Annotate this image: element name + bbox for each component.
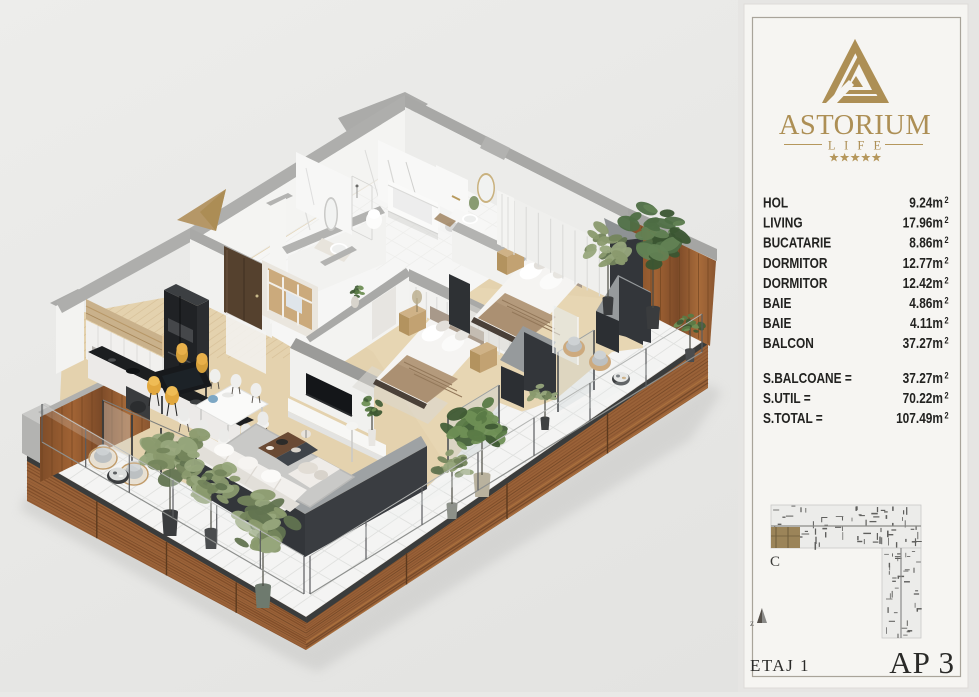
svg-text:BUCATARIE: BUCATARIE <box>763 235 831 251</box>
svg-text:37.27m: 37.27m <box>903 370 943 386</box>
svg-text:17.96m: 17.96m <box>903 214 943 230</box>
svg-text:12.42m: 12.42m <box>903 275 943 291</box>
svg-text:4.86m: 4.86m <box>909 295 943 311</box>
svg-text:BALCON: BALCON <box>763 335 814 351</box>
svg-text:2: 2 <box>944 276 948 286</box>
svg-text:ASTORIUM: ASTORIUM <box>779 110 931 141</box>
svg-text:HOL: HOL <box>763 194 788 210</box>
svg-text:S.TOTAL =: S.TOTAL = <box>763 410 823 426</box>
svg-text:S.BALCOANE =: S.BALCOANE = <box>763 370 852 386</box>
svg-text:BAIE: BAIE <box>763 295 792 311</box>
svg-text:12.77m: 12.77m <box>903 255 943 271</box>
svg-text:C: C <box>770 554 780 570</box>
svg-text:ETAJ 1: ETAJ 1 <box>750 656 810 675</box>
svg-text:4.11m: 4.11m <box>910 315 943 331</box>
svg-text:2: 2 <box>944 316 948 326</box>
svg-text:2: 2 <box>944 215 948 225</box>
svg-text:70.22m: 70.22m <box>903 390 943 406</box>
svg-text:2: 2 <box>944 411 948 421</box>
svg-text:BAIE: BAIE <box>763 315 792 331</box>
svg-text:2: 2 <box>944 236 948 246</box>
svg-text:DORMITOR: DORMITOR <box>763 255 828 271</box>
svg-text:2: 2 <box>944 391 948 401</box>
svg-text:2: 2 <box>944 256 948 266</box>
svg-text:2: 2 <box>944 336 948 346</box>
svg-text:2: 2 <box>944 296 948 306</box>
svg-text:8.86m: 8.86m <box>909 235 943 251</box>
svg-text:9.24m: 9.24m <box>909 194 943 210</box>
svg-text:2: 2 <box>944 195 948 205</box>
svg-text:L I F E: L I F E <box>828 139 884 153</box>
svg-text:z: z <box>750 618 754 628</box>
svg-text:LIVING: LIVING <box>763 214 803 230</box>
svg-text:2: 2 <box>944 371 948 381</box>
svg-text:107.49m: 107.49m <box>896 410 943 426</box>
svg-text:37.27m: 37.27m <box>903 335 943 351</box>
svg-text:DORMITOR: DORMITOR <box>763 275 828 291</box>
svg-text:S.UTIL =: S.UTIL = <box>763 390 811 406</box>
svg-text:AP 3: AP 3 <box>889 645 955 680</box>
